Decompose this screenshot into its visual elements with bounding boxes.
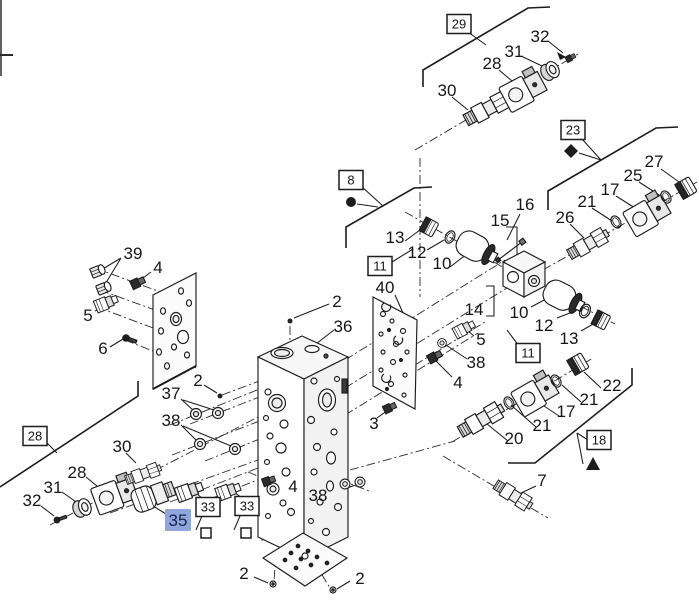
svg-text:40: 40 <box>376 278 395 297</box>
callout-16[interactable]: 16 <box>516 195 535 214</box>
svg-text:10: 10 <box>433 254 452 273</box>
callout-17[interactable]: 17 <box>557 402 576 421</box>
plug-4-mid[interactable] <box>427 349 444 364</box>
callout-10[interactable]: 10 <box>510 303 529 322</box>
callout-2[interactable]: 2 <box>239 564 248 583</box>
svg-text:21: 21 <box>578 192 597 211</box>
callout-38[interactable]: 38 <box>467 353 486 372</box>
svg-text:38: 38 <box>162 411 181 430</box>
svg-text:11: 11 <box>521 346 535 361</box>
callout-2[interactable]: 2 <box>332 292 341 311</box>
svg-text:32: 32 <box>531 27 550 46</box>
callout-36[interactable]: 36 <box>334 317 353 336</box>
callout-40[interactable]: 40 <box>376 278 395 297</box>
callout-21[interactable]: 21 <box>533 416 552 435</box>
nut-37a[interactable] <box>191 409 202 420</box>
window-edge-artifact <box>0 0 13 76</box>
svg-text:4: 4 <box>288 477 297 496</box>
fitting-3[interactable] <box>382 401 397 414</box>
callout-28-boxed[interactable]: 28 <box>23 427 47 446</box>
filled-diamond-symbol <box>564 144 578 158</box>
callout-31[interactable]: 31 <box>44 478 63 497</box>
screw-2-top[interactable] <box>288 319 293 324</box>
callout-27[interactable]: 27 <box>645 152 664 171</box>
svg-text:25: 25 <box>624 166 643 185</box>
callout-11-boxed[interactable]: 11 <box>516 344 540 363</box>
nut-38a[interactable] <box>195 439 206 450</box>
knob-13a[interactable] <box>419 217 439 237</box>
callout-29-boxed[interactable]: 29 <box>447 15 471 34</box>
svg-text:2: 2 <box>239 564 248 583</box>
solenoid-coil-17-right[interactable] <box>621 189 673 237</box>
open-square-symbol <box>201 528 211 538</box>
callout-25[interactable]: 25 <box>624 166 643 185</box>
svg-text:10: 10 <box>510 303 529 322</box>
svg-text:12: 12 <box>535 316 554 335</box>
callout-20[interactable]: 20 <box>505 429 524 448</box>
callout-11-boxed[interactable]: 11 <box>368 257 392 276</box>
svg-text:2: 2 <box>355 569 364 588</box>
callout-17[interactable]: 17 <box>601 180 620 199</box>
parts-layer <box>53 53 697 593</box>
svg-text:5: 5 <box>83 306 92 325</box>
callout-33-boxed[interactable]: 33 <box>196 498 220 517</box>
callout-4[interactable]: 4 <box>288 477 297 496</box>
svg-text:33: 33 <box>201 500 215 515</box>
svg-text:2: 2 <box>193 371 202 390</box>
svg-text:26: 26 <box>556 208 575 227</box>
screw-2-bottom-right[interactable] <box>330 587 336 593</box>
callout-26[interactable]: 26 <box>556 208 575 227</box>
callout-15[interactable]: 15 <box>491 211 510 230</box>
svg-text:32: 32 <box>23 491 42 510</box>
callout-14[interactable]: 14 <box>465 300 484 319</box>
svg-text:14: 14 <box>465 300 484 319</box>
mounting-plate-left[interactable] <box>153 273 196 389</box>
callout-4[interactable]: 4 <box>453 373 462 392</box>
callout-2[interactable]: 2 <box>355 569 364 588</box>
svg-text:38: 38 <box>467 353 486 372</box>
callout-28[interactable]: 28 <box>68 463 87 482</box>
callout-39[interactable]: 39 <box>124 244 143 263</box>
callout-12[interactable]: 12 <box>408 243 427 262</box>
callout-23-boxed[interactable]: 23 <box>561 121 585 140</box>
callout-8-boxed[interactable]: 8 <box>339 171 363 190</box>
nut-38b[interactable] <box>230 444 241 455</box>
callout-7[interactable]: 7 <box>537 471 546 490</box>
knob-13b[interactable] <box>591 310 611 330</box>
svg-text:35: 35 <box>169 511 188 530</box>
parts-diagram: 2932312830232725172126161581312101140141… <box>0 0 699 605</box>
nut-38-mid[interactable] <box>438 339 447 348</box>
diagram-canvas: 2932312830232725172126161581312101140141… <box>0 0 699 605</box>
open-square-symbol <box>241 528 251 538</box>
callout-21[interactable]: 21 <box>580 390 599 409</box>
screw-6[interactable] <box>122 334 138 345</box>
callout-6[interactable]: 6 <box>98 339 107 358</box>
svg-text:31: 31 <box>44 478 63 497</box>
svg-text:7: 7 <box>537 471 546 490</box>
svg-text:8: 8 <box>347 173 354 188</box>
callout-38[interactable]: 38 <box>162 411 181 430</box>
callout-2[interactable]: 2 <box>193 371 202 390</box>
svg-text:28: 28 <box>68 463 87 482</box>
svg-text:12: 12 <box>408 243 427 262</box>
gasket-plate-40[interactable] <box>373 297 417 409</box>
callout-12[interactable]: 12 <box>535 316 554 335</box>
oring-21-right[interactable] <box>609 214 623 230</box>
cartridge-5-mid[interactable] <box>452 318 477 339</box>
callout-18-boxed[interactable]: 18 <box>587 431 611 450</box>
cartridge-5-left[interactable] <box>93 293 119 313</box>
callout-5[interactable]: 5 <box>83 306 92 325</box>
svg-text:11: 11 <box>373 259 387 274</box>
callout-13[interactable]: 13 <box>560 329 579 348</box>
callout-30[interactable]: 30 <box>438 81 457 100</box>
svg-text:38: 38 <box>309 486 328 505</box>
arrowhead <box>557 52 566 60</box>
callout-37[interactable]: 37 <box>162 384 181 403</box>
svg-text:27: 27 <box>645 152 664 171</box>
nut-38d[interactable] <box>355 477 365 487</box>
svg-text:3: 3 <box>369 414 378 433</box>
svg-text:16: 16 <box>516 195 535 214</box>
callout-13[interactable]: 13 <box>386 228 405 247</box>
callout-30[interactable]: 30 <box>113 437 132 456</box>
plug-4-left[interactable] <box>130 276 146 290</box>
svg-text:28: 28 <box>483 54 502 73</box>
callout-32[interactable]: 32 <box>531 27 550 46</box>
valve-block-15[interactable] <box>503 251 545 297</box>
callout-31[interactable]: 31 <box>505 42 524 61</box>
callout-33-boxed[interactable]: 33 <box>235 497 259 516</box>
svg-text:21: 21 <box>580 390 599 409</box>
screw-2-mid[interactable] <box>218 394 223 399</box>
screw-32-top[interactable] <box>565 53 577 63</box>
svg-text:31: 31 <box>505 42 524 61</box>
callout-28[interactable]: 28 <box>483 54 502 73</box>
svg-text:21: 21 <box>533 416 552 435</box>
valve-block-36[interactable] <box>258 336 348 559</box>
svg-text:15: 15 <box>491 211 510 230</box>
svg-text:4: 4 <box>153 258 162 277</box>
svg-text:22: 22 <box>603 376 622 395</box>
nut-38c[interactable] <box>340 479 350 489</box>
solenoid-cartridge-30-bl[interactable] <box>124 461 163 486</box>
cartridge-26[interactable] <box>565 226 611 262</box>
callout-3[interactable]: 3 <box>369 414 378 433</box>
filled-circle-symbol <box>346 197 356 207</box>
callout-4[interactable]: 4 <box>153 258 162 277</box>
svg-text:39: 39 <box>124 244 143 263</box>
svg-text:29: 29 <box>452 17 466 32</box>
svg-text:6: 6 <box>98 339 107 358</box>
callout-35[interactable]: 35 <box>165 509 191 531</box>
hex-screw-39b[interactable] <box>96 281 113 296</box>
svg-text:18: 18 <box>592 433 606 448</box>
knob-27[interactable] <box>675 177 697 200</box>
nut-37b[interactable] <box>213 408 224 419</box>
callout-22[interactable]: 22 <box>603 376 622 395</box>
svg-text:30: 30 <box>113 437 132 456</box>
svg-text:5: 5 <box>476 330 485 349</box>
callout-32[interactable]: 32 <box>23 491 42 510</box>
screw-2-bottom-left[interactable] <box>270 581 276 587</box>
svg-text:4: 4 <box>453 373 462 392</box>
cartridge-7[interactable] <box>492 478 535 513</box>
solenoid-10a[interactable] <box>452 227 501 270</box>
svg-text:28: 28 <box>28 429 42 444</box>
screw-32-bl[interactable] <box>53 514 67 524</box>
svg-text:23: 23 <box>566 123 580 138</box>
callout-21[interactable]: 21 <box>578 192 597 211</box>
svg-text:13: 13 <box>560 329 579 348</box>
svg-text:13: 13 <box>386 228 405 247</box>
svg-text:20: 20 <box>505 429 524 448</box>
svg-text:37: 37 <box>162 384 181 403</box>
filled-triangle-symbol <box>586 457 600 470</box>
svg-text:2: 2 <box>332 292 341 311</box>
svg-text:17: 17 <box>601 180 620 199</box>
callout-38[interactable]: 38 <box>309 486 328 505</box>
svg-text:36: 36 <box>334 317 353 336</box>
callout-5[interactable]: 5 <box>476 330 485 349</box>
hex-screw-39a[interactable] <box>90 264 107 279</box>
callout-10[interactable]: 10 <box>433 254 452 273</box>
svg-text:30: 30 <box>438 81 457 100</box>
svg-text:33: 33 <box>240 499 254 514</box>
svg-text:17: 17 <box>557 402 576 421</box>
